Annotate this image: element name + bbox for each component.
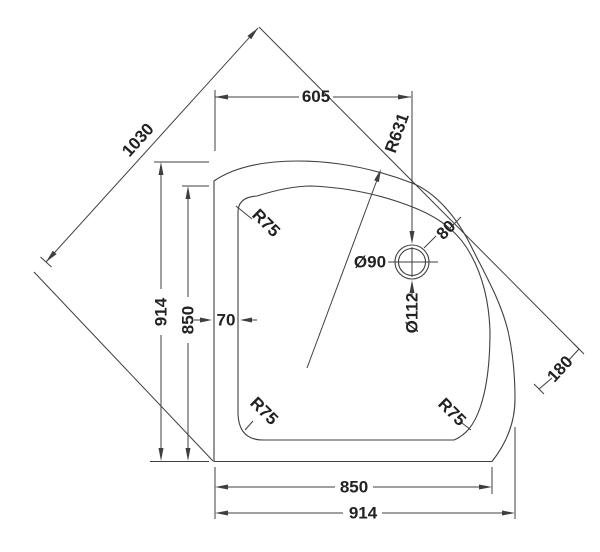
arrowhead-bottom xyxy=(186,448,191,461)
arrowhead-bottom xyxy=(410,280,415,293)
radius-leader xyxy=(307,180,377,368)
label-914-left: 914 xyxy=(152,297,171,326)
label-r631: R631 xyxy=(381,111,413,156)
label-1030: 1030 xyxy=(118,120,157,161)
dim-80: 80 xyxy=(424,217,461,248)
arrowhead-right xyxy=(502,511,515,516)
waste-drain xyxy=(388,245,438,279)
label-850-bottom: 850 xyxy=(340,478,368,497)
dim-r631: R631 xyxy=(307,111,413,368)
arrowhead-right xyxy=(240,318,252,323)
arrowhead-left xyxy=(215,485,228,490)
leader xyxy=(424,236,436,248)
dim-605: 605 xyxy=(215,87,412,231)
dim-r75-bottom-left: R75 xyxy=(245,393,282,430)
dim-r75-top-left: R75 xyxy=(236,205,284,240)
arrowhead-top xyxy=(186,186,191,199)
arrowhead-left xyxy=(215,95,228,100)
arrowhead-top xyxy=(159,162,164,175)
drawing-canvas: 605 1030 R631 R75 R75 R75 914 xyxy=(0,0,600,552)
dim-914-bottom: 914 xyxy=(215,427,515,523)
dim-180: 180 xyxy=(534,344,584,394)
dim-1030: 1030 xyxy=(41,28,259,267)
dim-70: 70 xyxy=(194,311,257,330)
dim-r75-bottom-right: R75 xyxy=(434,394,471,430)
dimension-line xyxy=(46,28,258,262)
label-605: 605 xyxy=(302,87,330,106)
shower-tray-dimension-drawing: 605 1030 R631 R75 R75 R75 914 xyxy=(0,0,600,552)
arrowhead-right xyxy=(398,95,411,100)
leader xyxy=(245,421,253,430)
label-dia-112: Ø112 xyxy=(403,293,422,334)
leader xyxy=(462,423,471,430)
label-914-bottom: 914 xyxy=(349,504,378,523)
arrowhead-right xyxy=(479,485,492,490)
label-70: 70 xyxy=(217,311,236,330)
label-r75-top-left: R75 xyxy=(248,205,283,240)
dim-dia-90: Ø90 xyxy=(354,253,386,272)
arrowhead-left xyxy=(200,318,212,323)
arrowhead-bottom xyxy=(159,448,164,461)
arrowhead-left xyxy=(215,511,228,516)
label-r75-bottom-left: R75 xyxy=(246,393,281,428)
arrowhead-top xyxy=(410,231,415,244)
corner-extension-line xyxy=(34,272,213,461)
label-dia-90: Ø90 xyxy=(354,253,386,272)
dim-850-left: 850 xyxy=(179,186,210,461)
